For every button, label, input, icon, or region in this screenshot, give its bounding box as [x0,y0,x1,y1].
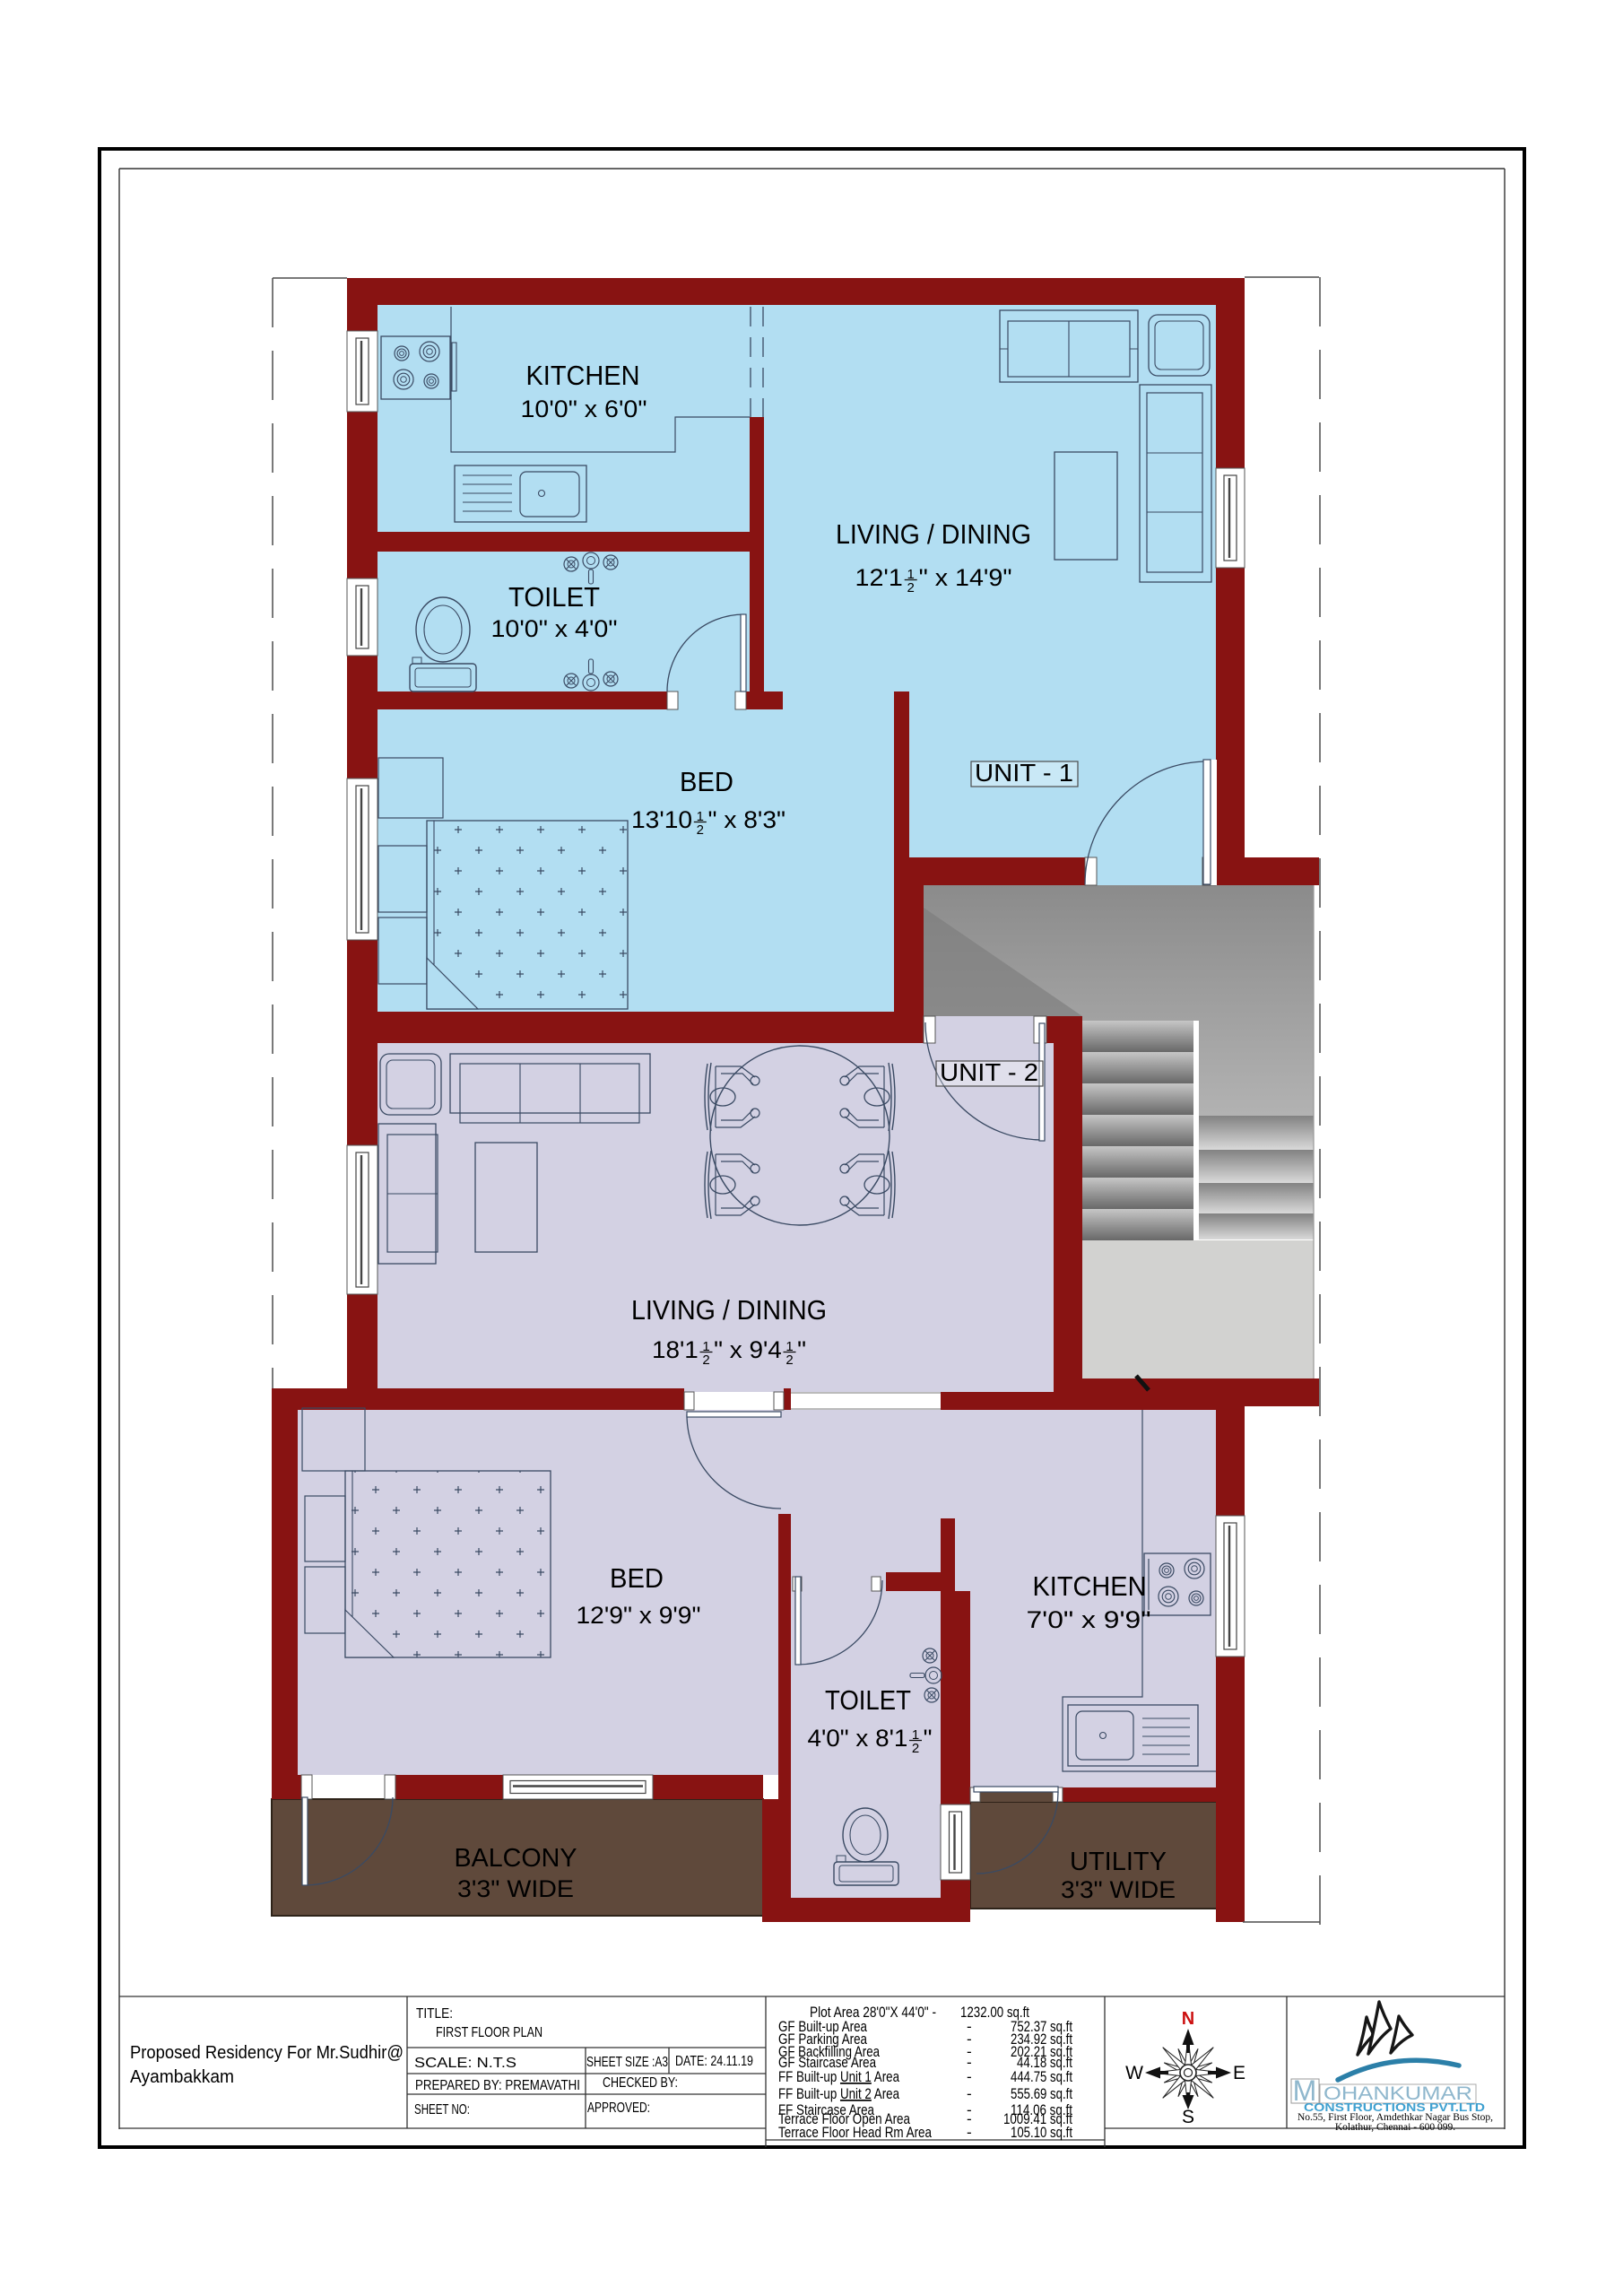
svg-text:FF Built-up Unit 1 Area: FF Built-up Unit 1 Area [778,2068,899,2085]
svg-text:-: - [967,2124,972,2141]
svg-text:FIRST FLOOR PLAN: FIRST FLOOR PLAN [436,2025,542,2040]
svg-text:3'3" WIDE: 3'3" WIDE [1061,1876,1176,1903]
svg-text:BED: BED [610,1562,664,1594]
svg-text:" x 9'4: " x 9'4 [714,1336,782,1363]
svg-text:SHEET NO:: SHEET NO: [414,2102,470,2118]
svg-text:Ayambakkam: Ayambakkam [130,2067,234,2087]
svg-text:TOILET: TOILET [825,1684,911,1716]
svg-text:4'0" x 8'1: 4'0" x 8'1 [808,1725,908,1752]
svg-text:DATE: 24.11.19: DATE: 24.11.19 [675,2054,753,2069]
svg-text:BED: BED [680,766,733,797]
svg-text:": " [924,1725,933,1752]
svg-text:2: 2 [702,1352,709,1368]
svg-text:LIVING / DINING: LIVING / DINING [631,1294,827,1326]
svg-text:UTILITY: UTILITY [1070,1848,1167,1876]
svg-text:444.75 sq.ft: 444.75 sq.ft [1011,2068,1072,2085]
svg-text:S: S [1182,2107,1194,2127]
svg-text:3'3" WIDE: 3'3" WIDE [457,1875,574,1902]
svg-text:SCALE: N.T.S: SCALE: N.T.S [414,2056,516,2071]
svg-text:2: 2 [907,580,915,596]
svg-text:KITCHEN: KITCHEN [526,360,640,391]
svg-text:105.10 sq.ft: 105.10 sq.ft [1011,2124,1072,2141]
svg-text:Proposed Residency For Mr.Sudh: Proposed Residency For Mr.Sudhir@ [130,2043,404,2063]
svg-text:UNIT - 1: UNIT - 1 [975,759,1073,787]
svg-text:Terrace Floor Head Rm Area: Terrace Floor Head Rm Area [778,2124,932,2141]
svg-text:18'1: 18'1 [652,1336,699,1363]
svg-text:E: E [1233,2063,1245,2083]
svg-text:" x 8'3": " x 8'3" [708,806,786,833]
svg-text:12'1: 12'1 [855,564,903,591]
svg-text:W: W [1125,2063,1143,2083]
svg-text:BALCONY: BALCONY [455,1844,577,1873]
svg-text:KITCHEN: KITCHEN [1033,1570,1147,1602]
svg-text:-: - [967,2085,972,2102]
svg-text:2: 2 [785,1352,793,1368]
svg-text:10'0" x 6'0": 10'0" x 6'0" [521,396,647,422]
svg-text:SHEET SIZE :A3: SHEET SIZE :A3 [586,2055,668,2070]
svg-text:10'0" x 4'0": 10'0" x 4'0" [491,615,618,642]
svg-text:555.69 sq.ft: 555.69 sq.ft [1011,2085,1072,2102]
svg-text:Kolathur, Chennai - 600 099.: Kolathur, Chennai - 600 099. [1335,2122,1455,2133]
svg-text:12'9" x 9'9": 12'9" x 9'9" [577,1602,701,1629]
svg-text:FF Built-up Unit 2 Area: FF Built-up Unit 2 Area [778,2085,899,2102]
svg-text:UNIT - 2: UNIT - 2 [940,1058,1038,1086]
svg-text:TOILET: TOILET [508,581,600,613]
svg-text:2: 2 [697,822,704,838]
svg-text:TITLE:: TITLE: [416,2006,453,2022]
svg-text:13'10: 13'10 [631,806,692,833]
svg-text:APPROVED:: APPROVED: [587,2100,650,2116]
svg-text:" x 14'9": " x 14'9" [919,564,1012,591]
svg-text:7'0" x 9'9": 7'0" x 9'9" [1027,1606,1151,1633]
svg-text:": " [797,1336,806,1363]
svg-text:PREPARED BY: PREMAVATHI: PREPARED BY: PREMAVATHI [415,2078,580,2093]
svg-text:2: 2 [912,1741,919,1756]
svg-text:-: - [967,2068,972,2085]
svg-text:N: N [1182,2009,1194,2029]
svg-text:CHECKED BY:: CHECKED BY: [603,2075,678,2091]
svg-text:LIVING / DINING: LIVING / DINING [836,518,1031,550]
